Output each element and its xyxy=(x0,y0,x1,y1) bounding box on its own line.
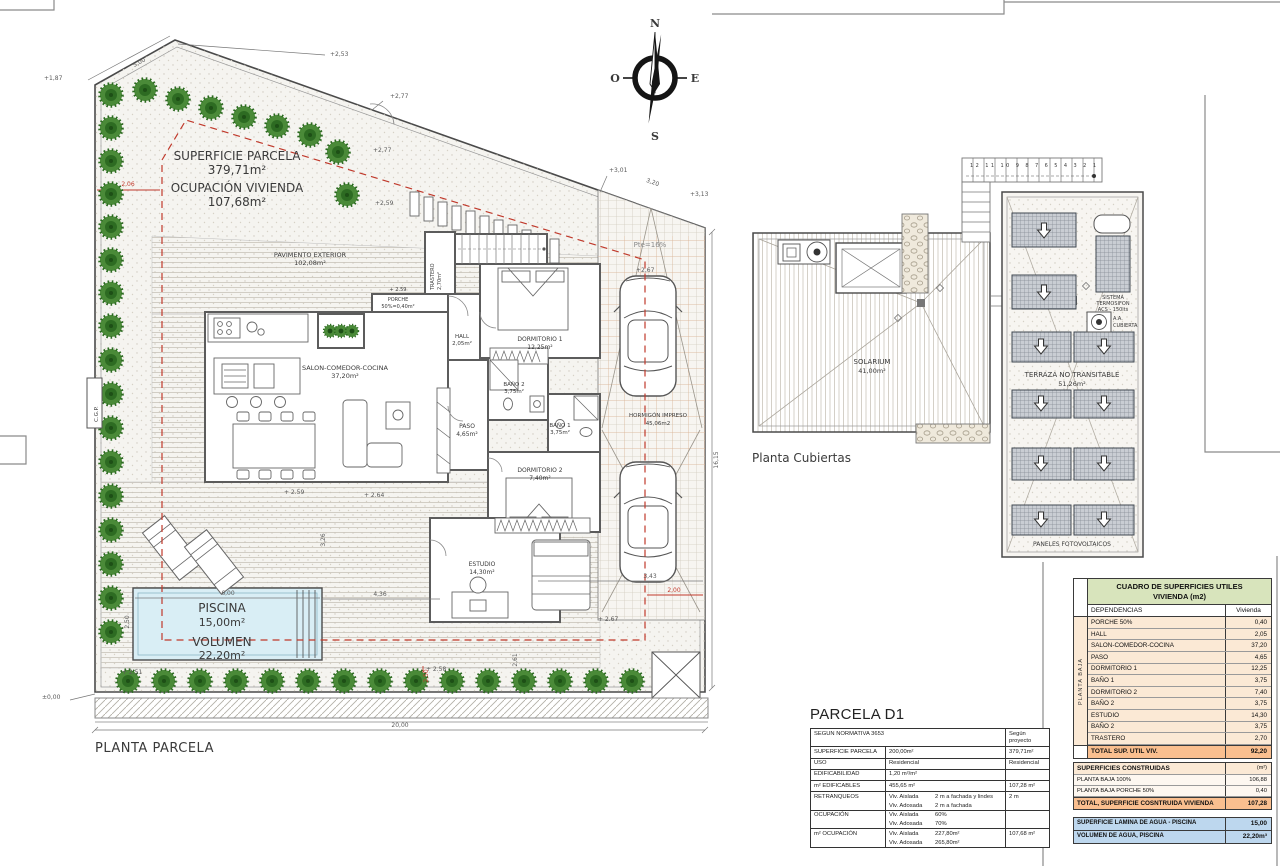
cell: SUPERFICIE PARCELA xyxy=(811,747,885,757)
table-row: VOLUMEN DE AGUA, PISCINA 22,20m³ xyxy=(1074,831,1271,843)
paso-value: 4,65m² xyxy=(456,431,478,438)
dim-label: 6,00 xyxy=(221,590,235,597)
hormigon-label: HORMIGÓN IMPRESO xyxy=(629,412,688,419)
cell: Viv. Aislada xyxy=(889,831,935,838)
dim-label: 4,36 xyxy=(373,591,387,598)
dim-label: 2,61 xyxy=(512,653,519,667)
terraza-label: TERRAZA NO TRANSITABLE xyxy=(1024,371,1120,379)
table-row: DORMITORIO 112,25 xyxy=(1088,664,1271,676)
estudio-value: 14,30m² xyxy=(469,569,495,576)
solarium-label: SOLARIUM xyxy=(854,358,891,366)
trastero-label: TRASTERO xyxy=(430,263,436,291)
cuadro-title-line1: CUADRO DE SUPERFICIES UTILES xyxy=(1088,582,1271,592)
piscina-label: PISCINA xyxy=(198,601,246,615)
cell: m² EDIFICABLES xyxy=(811,781,885,791)
table-row: PLANTA BAJA PORCHE 50% 0,40 xyxy=(1074,786,1271,797)
salon-value: 37,20m² xyxy=(331,372,359,380)
compass-east-label: E xyxy=(691,72,699,85)
superficies-construidas-table: SUPERFICIES CONSTRUIDAS (m²) PLANTA BAJA… xyxy=(1073,762,1272,810)
cuadro-header-row: DEPENDENCIAS Vivienda xyxy=(1074,605,1271,617)
porche-value: 50%=0,40m² xyxy=(381,304,414,310)
room-paso xyxy=(448,360,488,470)
dim-label: 2,00 xyxy=(667,587,681,594)
architectural-drawing-sheet: N S E O xyxy=(0,0,1280,866)
bano2-label: BAÑO 2 xyxy=(503,381,524,388)
dim-label: +1,87 xyxy=(44,75,63,82)
volumen-label: VOLUMEN xyxy=(192,635,251,649)
cell: 70% xyxy=(935,821,1002,828)
compass-north-label: N xyxy=(650,17,660,30)
table-row: PLANTA BAJA 100% 106,88 xyxy=(1074,775,1271,786)
chimney xyxy=(902,214,928,293)
table-row: BAÑO 23,75 xyxy=(1088,698,1271,710)
cell: 227,80m² xyxy=(935,831,1002,838)
cell: m² OCUPACIÓN xyxy=(811,829,885,846)
cuadro-title-line2: VIVIENDA (m2) xyxy=(1088,592,1271,602)
total-row: TOTAL SUP. UTIL VIV. 92,20 xyxy=(1074,745,1271,758)
compass-west-label: O xyxy=(610,72,620,85)
paneles-label: PANELES FOTOVOLTAICOS xyxy=(1033,541,1111,548)
parcela-table-title: PARCELA D1 xyxy=(810,706,1050,723)
dim-label: 16,15 xyxy=(713,451,720,468)
parcela-table: PARCELA D1 SEGUN NORMATIVA 3653 Según pr… xyxy=(810,706,1050,848)
sidewalk xyxy=(95,698,708,718)
dim-label: +3,01 xyxy=(609,167,628,174)
cell: 60% xyxy=(935,812,1002,819)
porche-level: + 2.59 xyxy=(390,287,407,293)
cell xyxy=(1005,811,1049,828)
superficie-parcela-value: 379,71m² xyxy=(208,163,267,177)
trastero-value: 2,70m² xyxy=(437,272,443,290)
dim-label: 3,43 xyxy=(643,573,657,580)
piscina-table: SUPERFICIE LAMINA DE AGUA - PISCINA 15,0… xyxy=(1073,817,1272,844)
roof-plan-title: Planta Cubiertas xyxy=(752,451,851,465)
section-header: SUPERFICIES CONSTRUIDAS xyxy=(1074,763,1225,774)
tv-unit xyxy=(437,388,450,473)
cell: OCUPACIÓN xyxy=(811,811,885,828)
roof-plan-solarium: SOLARIUM 41,00m² Planta Cubiertas xyxy=(752,214,1002,465)
table-row: SALON-COMEDOR-COCINA37,20 xyxy=(1088,640,1271,652)
dormitorio1-label: DORMITORIO 1 xyxy=(517,336,562,343)
cgp-label: C.G.P. xyxy=(94,406,100,422)
col-header: DEPENDENCIAS xyxy=(1088,605,1225,616)
total-label: TOTAL SUP. UTIL VIV. xyxy=(1088,746,1225,758)
pavimento-label: PAVIMENTO EXTERIOR xyxy=(274,251,347,259)
compass-rose: N S E O xyxy=(610,17,699,143)
cell: RETRANQUEOS xyxy=(811,792,885,809)
table-row: USO Residencial Residencial xyxy=(811,758,1049,769)
solarium-value: 41,00m² xyxy=(858,367,886,375)
cell: 200,00m² xyxy=(885,747,1005,757)
site-plan-title: PLANTA PARCELA xyxy=(95,741,214,756)
cell: Viv. Adosada xyxy=(889,821,935,828)
salon-label: SALON-COMEDOR-COCINA xyxy=(302,364,388,372)
cell xyxy=(1005,770,1049,780)
cell: 1,20 m²/m² xyxy=(885,770,1005,780)
cell: 455,65 m² xyxy=(885,781,1005,791)
dim-label: + 2.59 xyxy=(284,489,304,496)
table-row: PASO4,65 xyxy=(1088,652,1271,664)
dim-label: 2,50 xyxy=(423,669,430,683)
bano1-value: 3,75m² xyxy=(550,429,570,436)
dim-label: 20,00 xyxy=(391,722,408,729)
cell: Viv. Aislada2 m a fachada y lindes Viv. … xyxy=(885,792,1005,809)
cgp-box: C.G.P. xyxy=(87,378,102,428)
dim-label: +2,77 xyxy=(373,147,392,154)
table-row: TRASTERO2,70 xyxy=(1088,733,1271,745)
cuadro-title: CUADRO DE SUPERFICIES UTILES VIVIENDA (m… xyxy=(1088,579,1271,605)
cuadro-superficies-table: CUADRO DE SUPERFICIES UTILES VIVIENDA (m… xyxy=(1073,578,1272,844)
site-plan: C.G.P. SUPERFICIE PARCELA 379,71m² OCUPA… xyxy=(42,36,720,756)
cell: 379,71m² xyxy=(1005,747,1049,757)
car-icon xyxy=(614,462,682,582)
table-row: OCUPACIÓN Viv. Aislada60% Viv. Adosada70… xyxy=(811,810,1049,828)
dormitorio2-value: 7,40m² xyxy=(529,475,551,482)
superficie-parcela-label: SUPERFICIE PARCELA xyxy=(174,149,302,163)
table-row: SEGUN NORMATIVA 3653 Según proyecto xyxy=(811,729,1049,746)
hall-label: HALL xyxy=(455,334,470,340)
volumen-value: 22,20m² xyxy=(199,649,246,662)
planta-baja-side-label: PLANTA BAJA xyxy=(1074,617,1088,745)
cell: 265,80m² xyxy=(935,840,1002,847)
dim-label: ±0,00 xyxy=(42,694,61,701)
table-row: HALL2,05 xyxy=(1088,629,1271,641)
compass-south-label: S xyxy=(651,130,659,143)
ocupacion-vivienda-label: OCUPACIÓN VIVIENDA xyxy=(171,180,304,195)
spacer-cell xyxy=(1074,579,1088,605)
cell: 107,28 m² xyxy=(1005,781,1049,791)
table-row: BAÑO 13,75 xyxy=(1088,675,1271,687)
dim-label: +2,53 xyxy=(330,51,349,58)
dim-label: + 2.64 xyxy=(364,492,384,499)
ocupacion-vivienda-value: 107,68m² xyxy=(208,195,267,209)
car-icon xyxy=(614,276,682,396)
cell: Viv. Aislada60% Viv. Adosada70% xyxy=(885,811,1005,828)
table-row: SUPERFICIE PARCELA 200,00m² 379,71m² xyxy=(811,746,1049,757)
pavimento-value: 102,08m² xyxy=(294,259,326,267)
driveway xyxy=(598,190,705,620)
table-row: PORCHE 50%0,40 xyxy=(1088,617,1271,629)
header-cell: SEGUN NORMATIVA 3653 xyxy=(811,729,1005,746)
table-row: BAÑO 23,75 xyxy=(1088,722,1271,734)
dim-label: +2,77 xyxy=(390,93,409,100)
cell: Residencial xyxy=(1005,759,1049,769)
spacer-cell xyxy=(1074,605,1088,616)
cell: Viv. Adosada xyxy=(889,803,935,810)
table-row: SUPERFICIE LAMINA DE AGUA - PISCINA 15,0… xyxy=(1074,818,1271,831)
total-value: 92,20 xyxy=(1225,746,1271,758)
col-header: Vivienda xyxy=(1225,605,1271,616)
paso-label: PASO xyxy=(459,423,475,430)
terraza-value: 51,26m² xyxy=(1058,380,1086,388)
cell: Residencial xyxy=(885,759,1005,769)
dim-label: +2,67 xyxy=(636,267,655,274)
dim-label: 3,26 xyxy=(320,533,327,547)
table-row: m² EDIFICABLES 455,65 m² 107,28 m² xyxy=(811,780,1049,791)
hormigon-value: 45,06m2 xyxy=(646,421,671,427)
cell: 2 m xyxy=(1005,792,1049,809)
dim-label: +3,13 xyxy=(690,191,709,198)
ac-label: CUBIERTA xyxy=(1113,323,1138,329)
piscina-value: 15,00m² xyxy=(199,616,246,629)
unit-label: (m²) xyxy=(1225,763,1271,774)
table-row: ESTUDIO14,30 xyxy=(1088,710,1271,722)
table-row: DORMITORIO 27,40 xyxy=(1088,687,1271,699)
total-row: TOTAL, SUPERFICIE COSNTRUIDA VIVIENDA 10… xyxy=(1074,797,1271,809)
cell: 2 m a fachada xyxy=(935,803,1002,810)
cell: Viv. Aislada xyxy=(889,794,935,801)
cell: 2 m a fachada y lindes xyxy=(935,794,1002,801)
parcela-table-grid: SEGUN NORMATIVA 3653 Según proyecto SUPE… xyxy=(810,728,1050,848)
dim-label: 3,20 xyxy=(645,177,660,188)
dim-label: +2,59 xyxy=(375,200,394,207)
table-row: RETRANQUEOS Viv. Aislada2 m a fachada y … xyxy=(811,791,1049,809)
table-row: SUPERFICIES CONSTRUIDAS (m²) xyxy=(1074,763,1271,775)
bano2-value: 3,75m² xyxy=(504,388,524,395)
cuadro-title-row: CUADRO DE SUPERFICIES UTILES VIVIENDA (m… xyxy=(1074,579,1271,605)
dim-label: + 2.67 xyxy=(598,616,618,623)
hall-value: 2,05m² xyxy=(452,340,472,347)
dim-label: + 2.51 xyxy=(122,669,142,676)
table-row: m² OCUPACIÓN Viv. Aislada227,80m² Viv. A… xyxy=(811,828,1049,846)
bano1-label: BAÑO 1 xyxy=(549,422,570,429)
ac-label: A.A. xyxy=(1113,316,1123,322)
cell: USO xyxy=(811,759,885,769)
utility-box xyxy=(652,652,700,698)
header-cell: Según proyecto xyxy=(1005,729,1049,746)
table-row: EDIFICABILIDAD 1,20 m²/m² xyxy=(811,769,1049,780)
dormitorio1-value: 12,25m² xyxy=(527,344,553,351)
dining-table xyxy=(233,424,315,468)
cell: Viv. Adosada xyxy=(889,840,935,847)
cell: Viv. Aislada xyxy=(889,812,935,819)
dormitorio2-label: DORMITORIO 2 xyxy=(517,467,562,474)
dim-label: 2,06 xyxy=(121,181,135,188)
cell: 107,68 m² xyxy=(1005,829,1049,846)
estudio-label: ESTUDIO xyxy=(469,561,496,568)
spacer-cell xyxy=(1074,746,1088,758)
sofa xyxy=(343,400,367,467)
dim-label: 2,50 xyxy=(124,615,131,629)
cell: EDIFICABILIDAD xyxy=(811,770,885,780)
pendiente-label: Pte=16% xyxy=(634,241,667,249)
porche-label: PORCHE xyxy=(388,297,409,303)
cell: Viv. Aislada227,80m² Viv. Adosada265,80m… xyxy=(885,829,1005,846)
